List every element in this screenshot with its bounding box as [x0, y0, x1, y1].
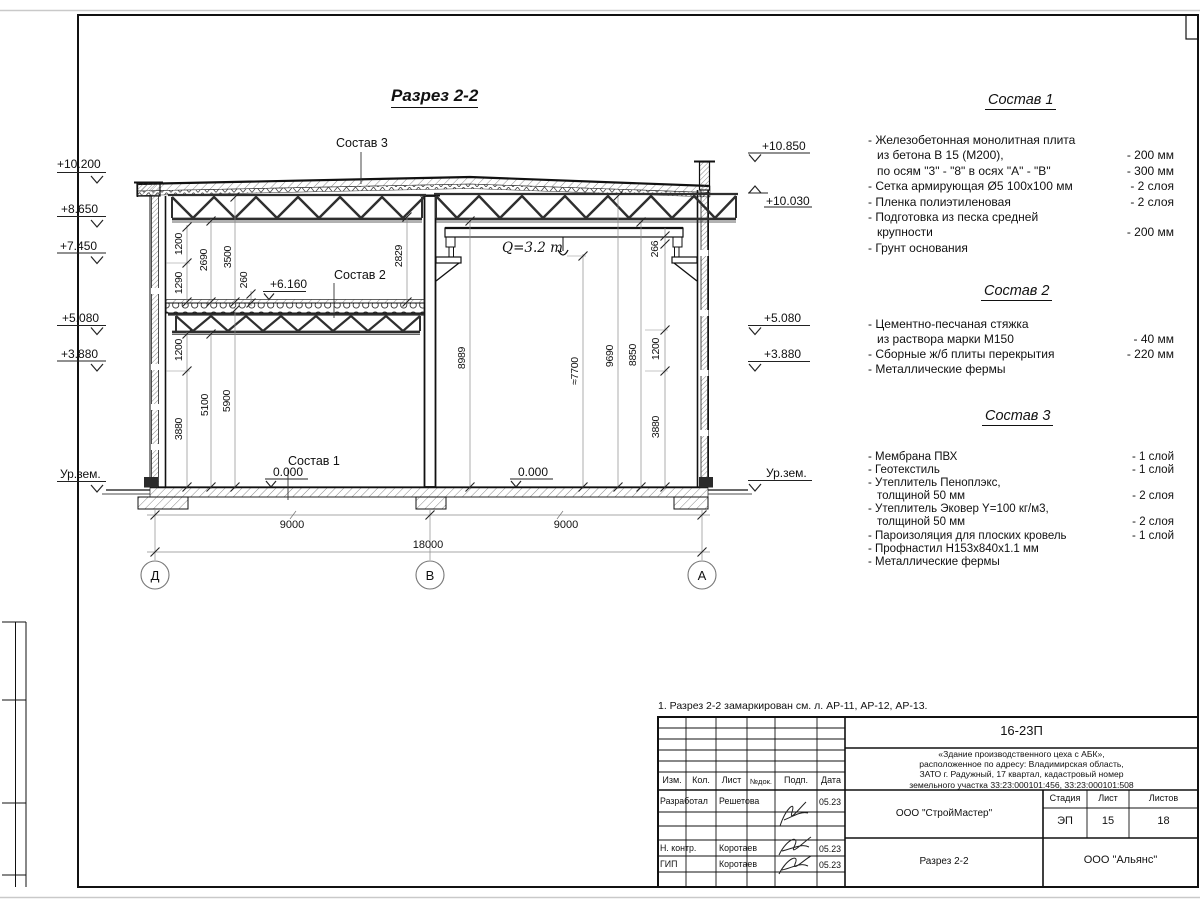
col-izm: Изм. — [658, 775, 686, 785]
titleblock-code: 16-23П — [845, 723, 1198, 738]
composition-row: - Пленка полиэтиленовая - 2 слоя — [868, 195, 1174, 210]
crane-capacity-label: Q=3.2 т — [502, 240, 563, 256]
dim-7700: ≈7700 — [569, 349, 581, 393]
composition-row: по осям "3" - "8" в осях "А" - "В" - 300… — [868, 164, 1174, 179]
composition-row: - Металлические фермы — [868, 362, 1174, 377]
axis-label-v: В — [422, 568, 438, 583]
dim-1200-right: 1200 — [650, 327, 662, 371]
date-gip: 05.23 — [819, 860, 841, 870]
level-right-ground: Ур.зем. — [766, 466, 807, 480]
dim-5900: 5900 — [221, 379, 233, 423]
name-ncontrol: Коротаев — [719, 843, 757, 853]
titleblock-org1: ООО "СтройМастер" — [845, 808, 1043, 819]
composition-row: - Геотекстиль - 1 слой — [868, 464, 1174, 477]
sheets-label: Листов — [1129, 793, 1198, 803]
composition-row: толщиной 50 мм - 2 слоя — [868, 516, 1174, 529]
composition1-list: - Железобетонная монолитная плита из бет… — [868, 133, 1174, 256]
axis-label-a: А — [694, 568, 710, 583]
composition3-list: - Мембрана ПВХ - 1 слой - Геотекстиль - … — [868, 451, 1174, 569]
composition-row: - Грунт основания — [868, 241, 1174, 256]
dim-9000-left: 9000 — [270, 519, 314, 531]
composition-row: крупности - 200 мм — [868, 225, 1174, 240]
composition-row: - Профнастил Н153х840х1.1 мм — [868, 543, 1174, 556]
level-right-3880: +3.880 — [764, 347, 801, 361]
level-left-3880: +3.880 — [61, 347, 98, 361]
col-ndok: №док. — [747, 777, 775, 786]
dim-18000: 18000 — [406, 539, 450, 551]
level-left-10200: +10.200 — [57, 157, 101, 171]
name-developer: Решетова — [719, 796, 759, 806]
level-right-5080: +5.080 — [764, 311, 801, 325]
level-left-5080: +5.080 — [62, 311, 99, 325]
stage-label: Стадия — [1043, 793, 1087, 803]
titleblock-doc-title: Разрез 2-2 — [845, 856, 1043, 867]
composition-row: из раствора марки М150 - 40 мм — [868, 332, 1174, 347]
level-floor-left: 0.000 — [273, 465, 303, 479]
dim-3880-left: 3880 — [173, 407, 185, 451]
role-developer: Разработал — [660, 796, 708, 806]
composition-row: из бетона В 15 (М200), - 200 мм — [868, 148, 1174, 163]
section-title: Разрез 2-2 — [391, 86, 478, 108]
dim-2829: 2829 — [393, 234, 405, 278]
col-podp: Подп. — [775, 775, 817, 785]
col-kol: Кол. — [686, 775, 716, 785]
composition-row: - Подготовка из песка средней — [868, 210, 1174, 225]
dim-1290: 1290 — [173, 261, 185, 305]
date-developer: 05.23 — [819, 797, 841, 807]
leader-label-sostav2: Состав 2 — [334, 268, 386, 282]
composition-row: толщиной 50 мм - 2 слоя — [868, 490, 1174, 503]
level-right-10030: +10.030 — [766, 194, 810, 208]
composition-row: - Мембрана ПВХ - 1 слой — [868, 451, 1174, 464]
composition-row: - Пароизоляция для плоских кровель - 1 с… — [868, 530, 1174, 543]
sheet-value: 15 — [1087, 815, 1129, 827]
role-gip: ГИП — [660, 859, 677, 869]
mezzanine-truss — [168, 315, 424, 335]
roof-truss — [168, 194, 738, 222]
composition3-title: Состав 3 — [982, 408, 1053, 426]
composition1-title: Состав 1 — [985, 92, 1056, 110]
drawing-sheet: Разрез 2-2 Состав 3 Состав 2 Состав 1 Q=… — [0, 0, 1200, 900]
sheet-note: 1. Разрез 2-2 замаркирован см. л. АР-11,… — [658, 700, 927, 712]
dim-9000-right: 9000 — [544, 519, 588, 531]
dim-1200-lower: 1200 — [173, 328, 185, 372]
dim-266: 266 — [649, 227, 661, 271]
composition-row: - Металлические фермы — [868, 556, 1174, 569]
stage-value: ЭП — [1043, 815, 1087, 827]
composition-row: - Цементно-песчаная стяжка — [868, 317, 1174, 332]
level-mezzanine: +6.160 — [270, 277, 307, 291]
name-gip: Коротаев — [719, 859, 757, 869]
leader-label-sostav3: Состав 3 — [336, 136, 388, 150]
dim-8989: 8989 — [456, 336, 468, 380]
composition-row: - Сборные ж/б плиты перекрытия - 220 мм — [868, 347, 1174, 362]
composition2-title: Состав 2 — [981, 283, 1052, 301]
dim-2690: 2690 — [198, 238, 210, 282]
composition-row: - Железобетонная монолитная плита — [868, 133, 1174, 148]
dim-9690: 9690 — [604, 334, 616, 378]
signatures — [779, 802, 811, 874]
role-ncontrol: Н. контр. — [660, 843, 696, 853]
sheet-label: Лист — [1087, 793, 1129, 803]
level-right-10850: +10.850 — [762, 139, 806, 153]
composition-row: - Сетка армирующая Ø5 100х100 мм - 2 сло… — [868, 179, 1174, 194]
titleblock-object: «Здание производственного цеха с АБК», р… — [845, 749, 1198, 790]
composition-row: - Утеплитель Эковер Y=100 кг/м3, — [868, 503, 1174, 516]
level-floor-right: 0.000 — [518, 465, 548, 479]
dim-5100: 5100 — [199, 383, 211, 427]
sheets-value: 18 — [1129, 815, 1198, 827]
leader-lines — [288, 152, 361, 500]
dim-3500: 3500 — [222, 235, 234, 279]
col-list: Лист — [716, 775, 747, 785]
level-left-ground: Ур.зем. — [60, 467, 101, 481]
level-left-8650: +8.650 — [61, 202, 98, 216]
date-ncontrol: 05.23 — [819, 844, 841, 854]
composition-row: - Утеплитель Пеноплэкс, — [868, 477, 1174, 490]
dim-1200-upper: 1200 — [173, 222, 185, 266]
col-data: Дата — [817, 775, 845, 785]
composition2-list: - Цементно-песчаная стяжка из раствора м… — [868, 317, 1174, 377]
axis-label-d: Д — [147, 568, 163, 583]
titleblock-org2: ООО "Альянс" — [1043, 854, 1198, 866]
dim-3880-right: 3880 — [650, 405, 662, 449]
level-left-7450: +7.450 — [60, 239, 97, 253]
dim-260: 260 — [238, 258, 250, 302]
dim-8850: 8850 — [627, 333, 639, 377]
